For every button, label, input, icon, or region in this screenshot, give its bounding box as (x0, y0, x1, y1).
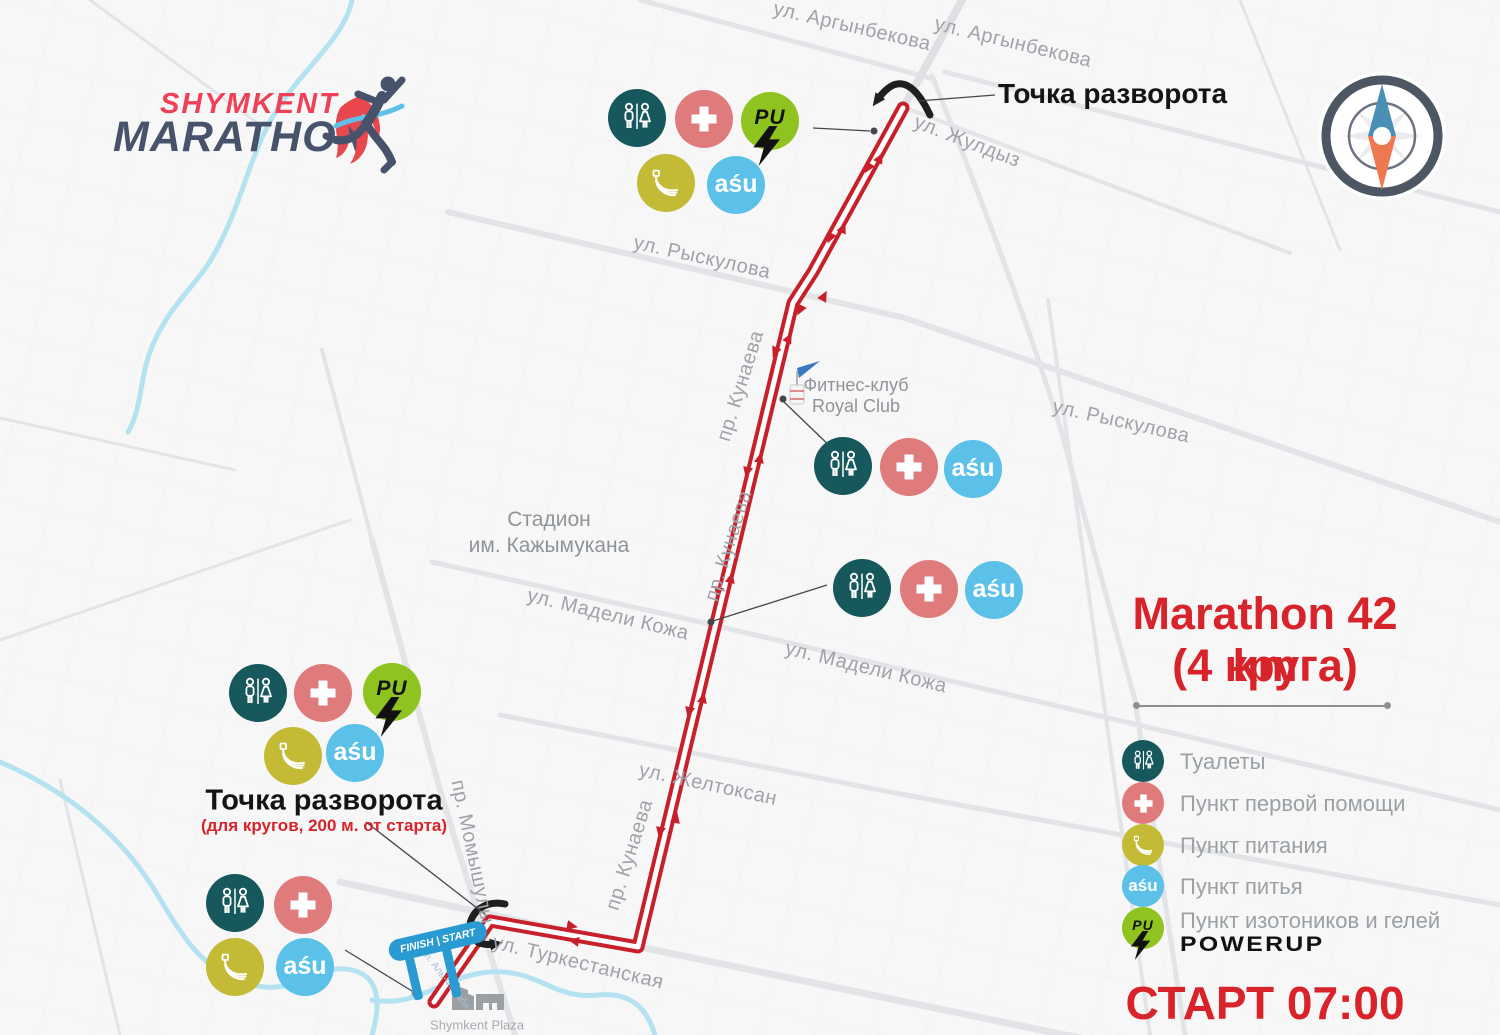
pu-label: PU (1132, 918, 1153, 932)
fitness-club-label: Фитнес-клуб Royal Club (803, 375, 908, 417)
bolt-icon (370, 697, 410, 737)
food-icon (264, 727, 322, 785)
food-icon (1122, 824, 1164, 866)
toilets-icon (814, 437, 872, 495)
stadium-label-line2: им. Кажымукана (469, 533, 630, 559)
plaza-label: Shymkent Plaza (430, 1018, 524, 1033)
stadium-label: Стадион им. Кажымукана (469, 507, 630, 559)
start-time-label: СТАРТ 07:00 (1100, 976, 1430, 1030)
toilets-icon (229, 664, 287, 722)
asu-label: aśu (714, 172, 757, 197)
fitness-club-label-line1: Фитнес-клуб (803, 375, 908, 396)
isotonic-icon: PU (1122, 907, 1164, 949)
drink-icon: aśu (965, 561, 1023, 619)
stadium-label-line1: Стадион (469, 507, 630, 533)
first-aid-icon (880, 438, 938, 496)
drink-icon: aśu (276, 938, 334, 996)
bolt-icon (1127, 931, 1156, 960)
fitness-club-label-line2: Royal Club (803, 396, 908, 417)
legend-label-isotonic: Пункт изотоников и гелей (1180, 908, 1440, 934)
drink-icon: aśu (707, 156, 765, 214)
toilets-icon (608, 89, 666, 147)
toilets-icon (1122, 740, 1164, 782)
first-aid-icon (294, 664, 352, 722)
first-aid-icon (675, 90, 733, 148)
asu-label: aśu (972, 577, 1015, 602)
turnaround-note: (для кругов, 200 м. от старта) (201, 816, 447, 836)
asu-label: aśu (951, 456, 994, 481)
legend-label-drink: Пункт питья (1180, 874, 1303, 900)
pu-label: PU (376, 678, 407, 699)
turnaround-label-bottom: Точка разворота (205, 785, 442, 818)
food-icon (206, 938, 264, 996)
compass-icon (1316, 70, 1448, 202)
legend-divider (1138, 705, 1386, 707)
marathon-route-map: ул. Аргынбекова ул. Аргынбекова ул. Жулд… (0, 0, 1500, 1035)
runner-logo-icon (310, 66, 425, 186)
asu-label: aśu (1128, 877, 1157, 894)
legend-label-toilets: Туалеты (1180, 749, 1265, 775)
toilets-icon (206, 874, 264, 932)
asu-label: aśu (333, 740, 376, 765)
first-aid-icon (900, 560, 958, 618)
drink-icon: aśu (944, 440, 1002, 498)
toilets-icon (833, 559, 891, 617)
first-aid-icon (274, 876, 332, 934)
pu-label: PU (754, 107, 785, 128)
drink-icon: aśu (1122, 865, 1164, 907)
turnaround-label-top: Точка разворота (998, 78, 1227, 110)
gate-leg-right (441, 943, 462, 998)
first-aid-icon (1122, 782, 1164, 824)
asu-label: aśu (283, 954, 326, 979)
isotonic-icon: PU (741, 92, 799, 150)
bolt-icon (748, 126, 788, 166)
legend-label-first-aid: Пункт первой помощи (1180, 791, 1405, 817)
isotonic-icon: PU (363, 663, 421, 721)
divider-dot-right (1384, 702, 1391, 709)
powerup-wordmark: POWERUP (1180, 933, 1325, 957)
food-icon (637, 154, 695, 212)
drink-icon: aśu (326, 724, 384, 782)
divider-dot-left (1133, 702, 1140, 709)
legend-label-food: Пункт питания (1180, 833, 1328, 859)
race-laps: (4 круга) (1100, 640, 1430, 692)
